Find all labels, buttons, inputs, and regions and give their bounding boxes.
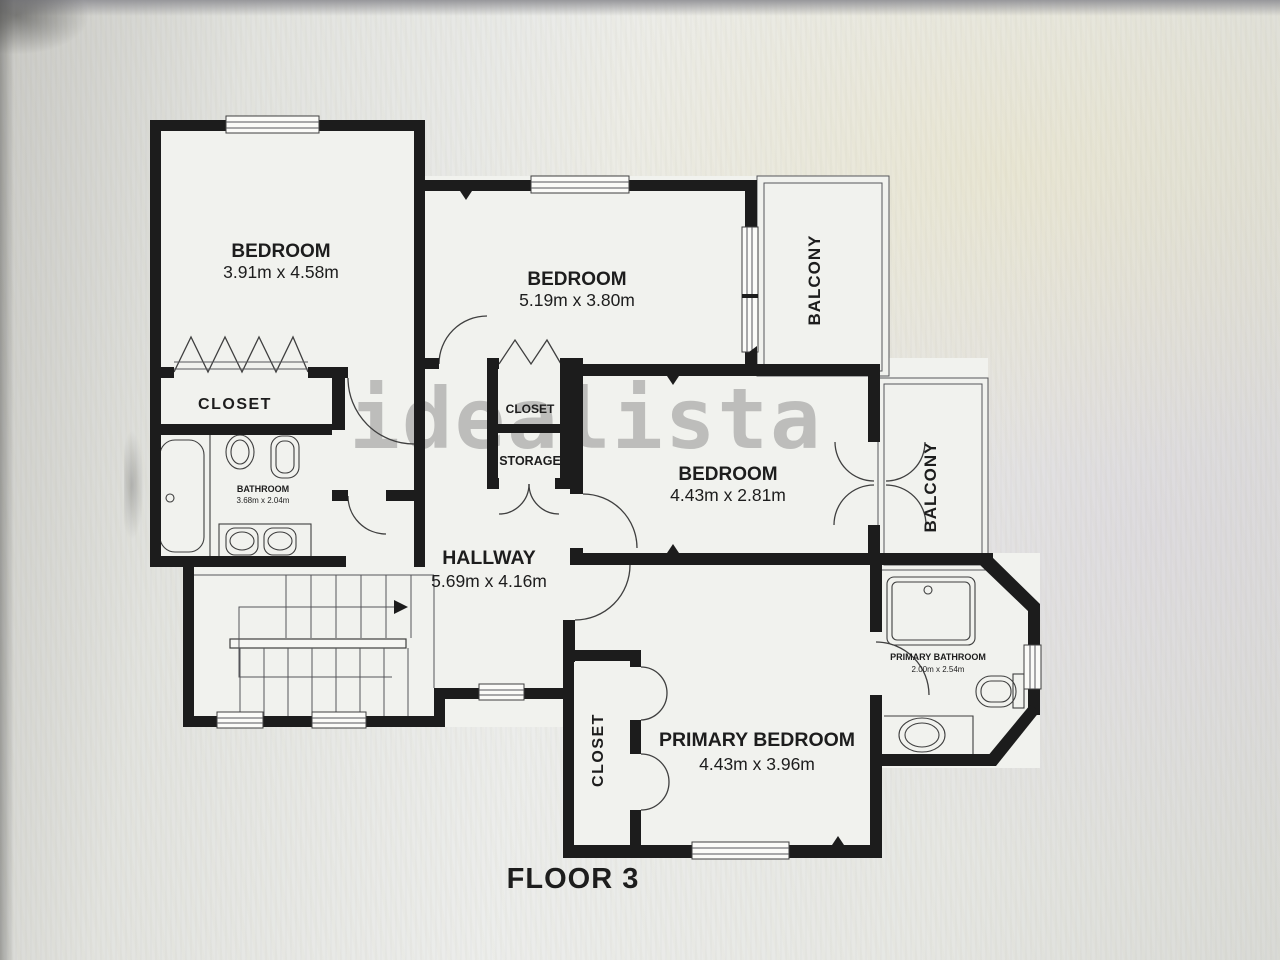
closet-primary-label: CLOSET <box>590 713 607 787</box>
hallway-dimensions: 5.69m x 4.16m <box>431 571 547 591</box>
window-primary-bathroom <box>1024 645 1041 689</box>
primary-bedroom-dimensions: 4.43m x 3.96m <box>699 754 815 774</box>
window-bedroom-top-left <box>226 116 319 133</box>
balcony-top-label: BALCONY <box>805 234 824 325</box>
window-stairs-right <box>312 712 366 728</box>
stair-rail <box>230 639 406 648</box>
primary-bathroom-dimensions: 2.00m x 2.54m <box>912 665 965 674</box>
bedroom-top-middle-dimensions: 5.19m x 3.80m <box>519 290 635 310</box>
window-hallway-bottom <box>479 684 524 700</box>
hallway-label: HALLWAY <box>442 547 536 569</box>
bathroom-label: BATHROOM <box>237 484 289 494</box>
bedroom-top-middle-label: BEDROOM <box>527 269 626 290</box>
bedroom-middle-right-label: BEDROOM <box>678 464 777 485</box>
window-primary-bedroom <box>692 842 789 859</box>
balcony-right-label: BALCONY <box>921 441 940 532</box>
window-bedroom-top-middle <box>531 176 629 193</box>
floor-title: FLOOR 3 <box>507 863 640 895</box>
window-stairs-left <box>217 712 263 728</box>
floor-plan: idealista <box>0 0 1280 960</box>
closet-top-left-label: CLOSET <box>198 396 272 413</box>
primary-bedroom-label: PRIMARY BEDROOM <box>659 729 855 751</box>
bedroom-top-left-dimensions: 3.91m x 4.58m <box>223 262 339 282</box>
bedroom-middle-right-dimensions: 4.43m x 2.81m <box>670 485 786 505</box>
storage-label: STORAGE <box>499 454 561 468</box>
closet-center-label: CLOSET <box>506 402 555 416</box>
window-bedroom2-balcony <box>742 227 758 352</box>
primary-bathroom-label: PRIMARY BATHROOM <box>890 652 986 662</box>
bathroom-dimensions: 3.68m x 2.04m <box>237 496 290 505</box>
bedroom-top-left-label: BEDROOM <box>231 241 330 262</box>
